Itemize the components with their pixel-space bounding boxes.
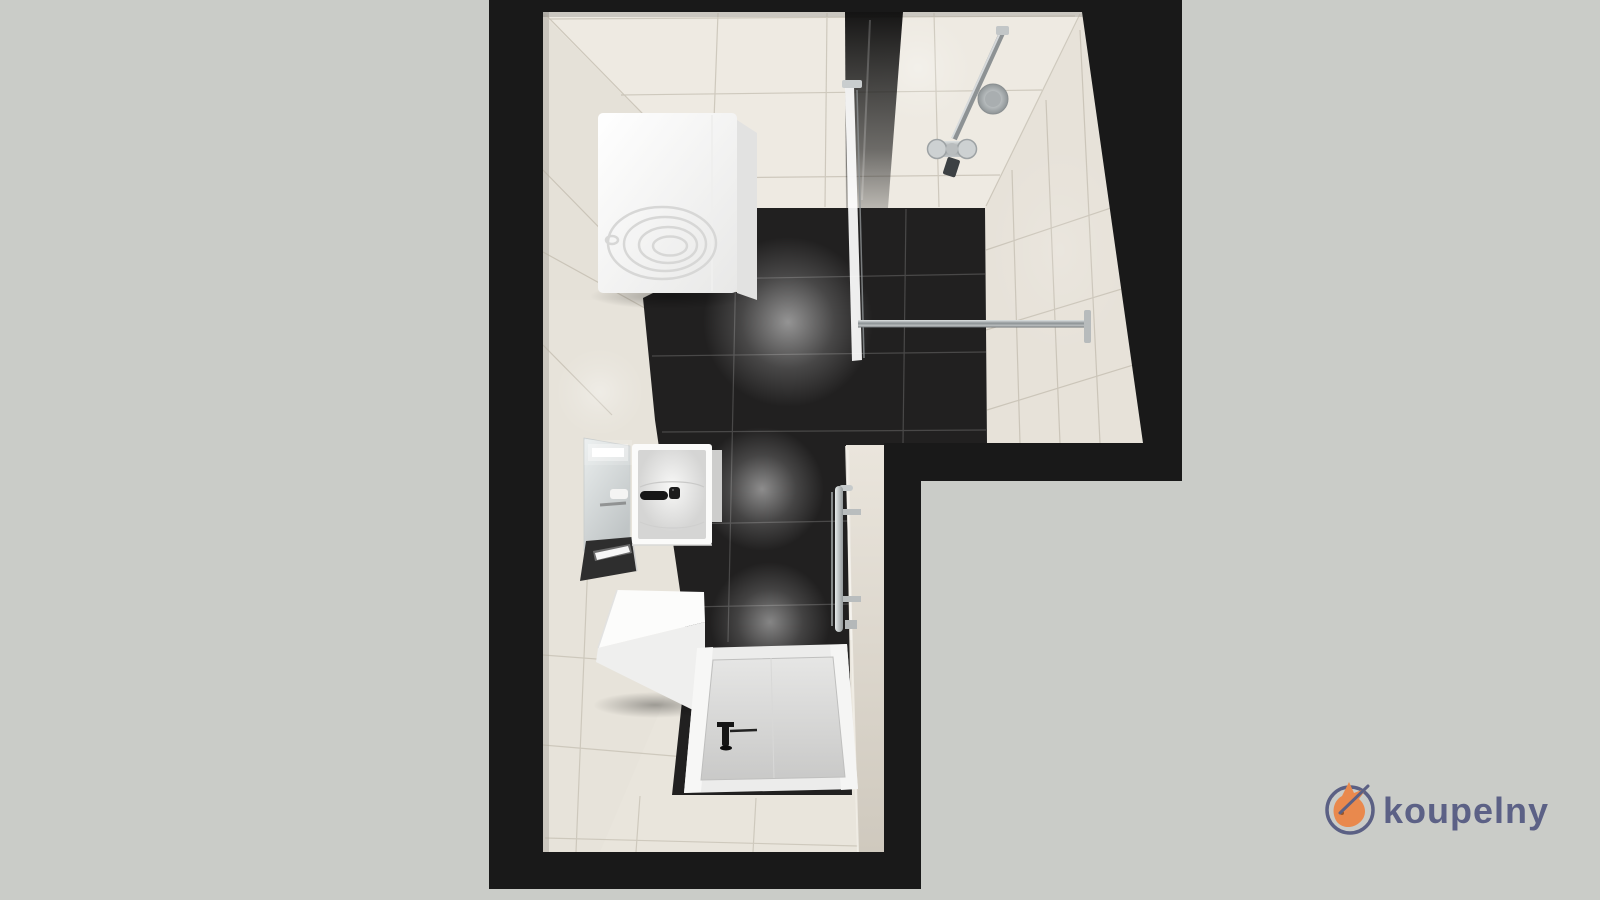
- mixer-escutcheon-right: [958, 140, 977, 159]
- radiator-standoff-bottom: [843, 596, 861, 602]
- mixer-escutcheon-left: [928, 140, 947, 159]
- black-basin-mixer-spout: [669, 487, 680, 499]
- logo-wordmark: koupelny: [1383, 790, 1549, 831]
- radiator-standoff-top: [843, 509, 861, 515]
- radiator-rail: [835, 486, 843, 632]
- shower-tray: [684, 644, 858, 793]
- basin-mixer-highlight: [672, 489, 674, 491]
- washing-machine-side-face: [737, 120, 757, 300]
- support-bar-wall-bracket: [1084, 310, 1091, 343]
- illuminated-mirror: [580, 438, 637, 581]
- washbasin-with-cabinet: [632, 444, 722, 545]
- washing-machine: [590, 113, 757, 309]
- mirror-led-strip: [592, 448, 624, 457]
- black-basin-mixer-handle: [640, 491, 668, 500]
- floor-mixer-base: [720, 746, 732, 751]
- left-edge-shadow: [543, 12, 549, 852]
- floorplan-svg: koupelny: [0, 0, 1600, 900]
- mixer-cap: [946, 143, 958, 155]
- floor-mixer-arm: [730, 730, 757, 731]
- bathroom-render-canvas: koupelny: [0, 0, 1600, 900]
- glass-wall-bracket: [842, 80, 862, 88]
- radiator-bottom-plate: [845, 620, 857, 629]
- support-bar: [858, 320, 1086, 327]
- mirror-reflection-faucet: [600, 503, 626, 505]
- shower-rail-bracket: [996, 26, 1009, 35]
- hand-shower-face: [985, 91, 1001, 107]
- floor-mixer-stem: [722, 724, 729, 746]
- mirror-reflection-cup: [610, 489, 628, 499]
